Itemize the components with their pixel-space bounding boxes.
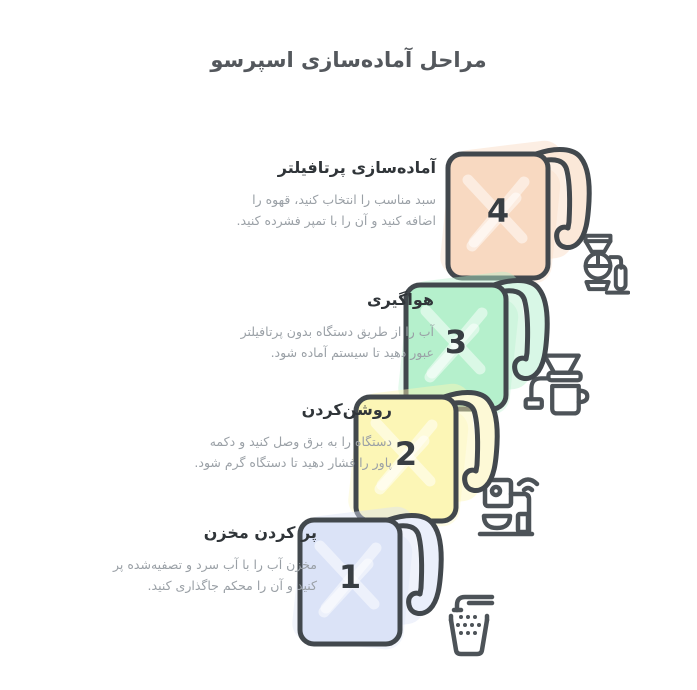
page-title: مراحل آماده‌سازی اسپرسو <box>0 48 697 72</box>
step-2-number: 2 <box>395 435 417 473</box>
step-4-description: سبد مناسب را انتخاب کنید، قهوه را اضافه … <box>231 189 436 232</box>
step-1-textblock: پر کردن مخزن مخزن آب را با آب سرد و تصفی… <box>102 523 317 597</box>
step-3-textblock: هواگیری آب را از طریق دستگاه بدون پرتافی… <box>239 290 434 364</box>
step-4-scroll: 4 <box>444 146 604 286</box>
step-3-description: آب را از طریق دستگاه بدون پرتافیلتر عبور… <box>239 321 434 364</box>
step-2-description: دستگاه را به برق وصل کنید و دکمه پاور را… <box>192 431 392 474</box>
step-4-textblock: آماده‌سازی پرتافیلتر سبد مناسب را انتخاب… <box>231 158 436 232</box>
step-2-heading: روشن‌کردن <box>192 400 392 419</box>
step-1-scroll: 1 <box>296 512 456 652</box>
step-3-number: 3 <box>445 323 467 361</box>
step-1-number: 1 <box>339 558 361 596</box>
step-2-textblock: روشن‌کردن دستگاه را به برق وصل کنید و دک… <box>192 400 392 474</box>
step-3-heading: هواگیری <box>239 290 434 309</box>
step-4-heading: آماده‌سازی پرتافیلتر <box>231 158 436 177</box>
espresso-steps-infographic: مراحل آماده‌سازی اسپرسو آماده‌سازی پرتاف… <box>0 0 697 690</box>
step-4-number: 4 <box>487 192 509 230</box>
step-1-heading: پر کردن مخزن <box>102 523 317 542</box>
step-1-description: مخزن آب را با آب سرد و تصفیه‌شده پر کنید… <box>102 554 317 597</box>
